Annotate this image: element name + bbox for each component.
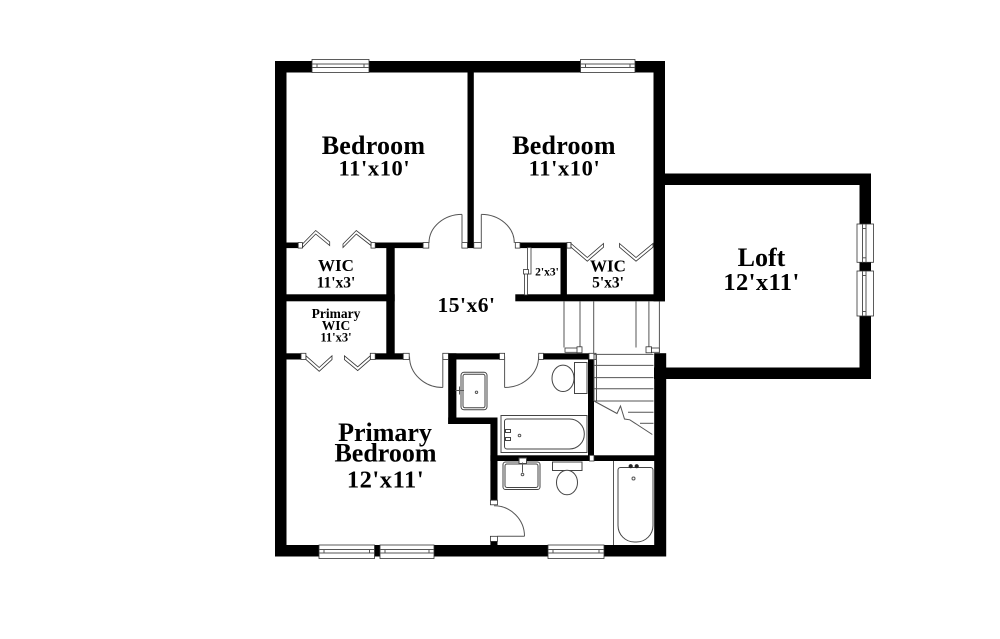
svg-text:12'x11': 12'x11': [347, 467, 424, 494]
svg-text:Bedroom: Bedroom: [334, 439, 436, 468]
svg-text:11'x3': 11'x3': [317, 275, 356, 292]
svg-text:5'x3': 5'x3': [592, 275, 624, 292]
svg-text:11'x10': 11'x10': [339, 156, 411, 181]
svg-text:12'x11': 12'x11': [723, 269, 799, 296]
svg-text:11'x3': 11'x3': [320, 331, 351, 345]
svg-text:15'x6': 15'x6': [438, 293, 496, 317]
svg-text:WIC: WIC: [590, 257, 626, 276]
svg-text:WIC: WIC: [318, 256, 354, 275]
svg-text:Loft: Loft: [738, 243, 786, 272]
svg-text:2'x3': 2'x3': [535, 267, 559, 279]
svg-text:11'x10': 11'x10': [529, 156, 601, 181]
